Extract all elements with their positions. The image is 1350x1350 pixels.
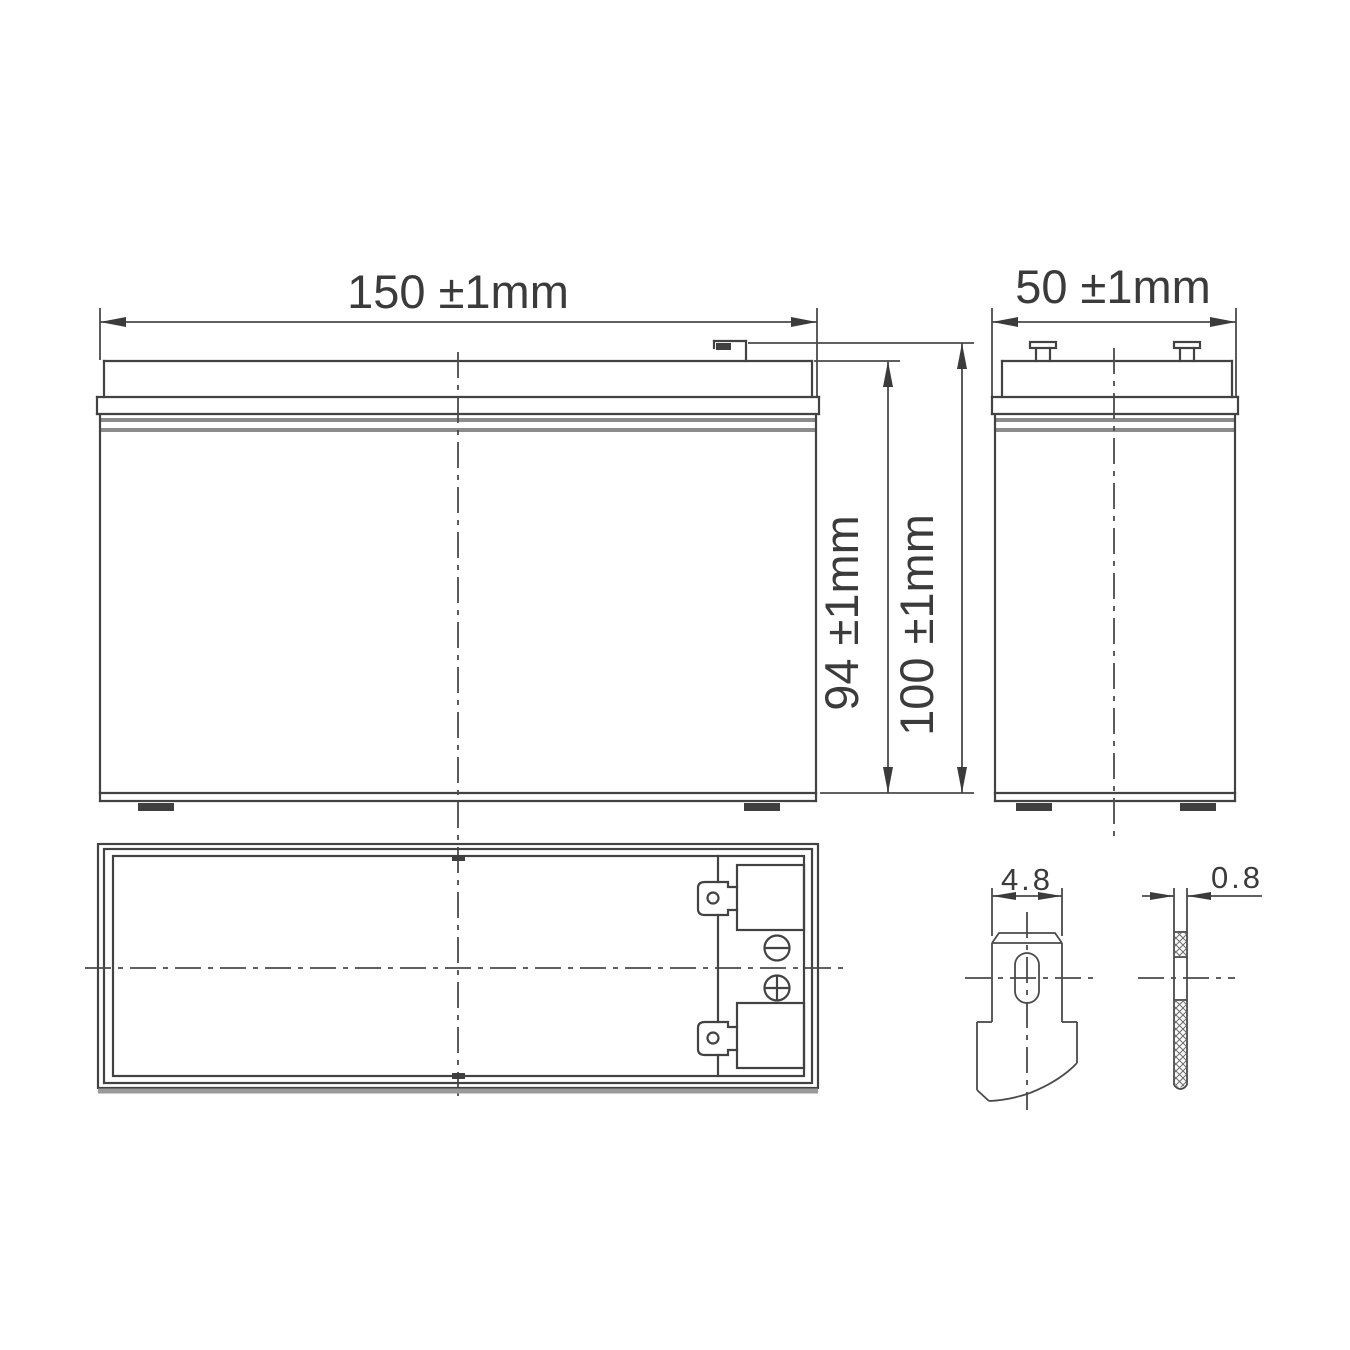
depth-dimension-label: 50 ±1mm [1015, 260, 1211, 313]
terminal-side-detail: 0.8 [1138, 860, 1263, 1089]
hatch-upper [1175, 932, 1186, 957]
side-view: 50 ±1mm [992, 260, 1238, 836]
front-terminal-tab [714, 341, 746, 361]
depth-dimension: 50 ±1mm [992, 260, 1236, 396]
side-foot-right [1180, 803, 1216, 811]
height-dimensions: 94 ±1mm 100 ±1mm [748, 343, 974, 793]
terminal-front-detail: 4.8 [965, 862, 1095, 1110]
terminal-width-label: 4.8 [1001, 862, 1053, 897]
terminal-thickness-label: 0.8 [1211, 860, 1263, 895]
drawing-canvas: 150 ±1mm [0, 0, 1350, 1350]
front-foot-left [138, 803, 174, 811]
top-terminal-base-2 [737, 1003, 804, 1068]
top-terminal-tab-1 [698, 882, 737, 915]
minus-terminal-marker [765, 936, 790, 961]
side-terminal-posts [1030, 342, 1200, 361]
total-height-dimension: 100 ±1mm [890, 343, 967, 793]
side-foot-left [1016, 803, 1052, 811]
case-height-dimension-label: 94 ±1mm [815, 515, 868, 711]
front-foot-right [744, 803, 780, 811]
hatch-lower [1175, 1000, 1186, 1088]
centerline-tick-bottom [452, 1073, 465, 1079]
top-terminal-tab-2 [698, 1022, 737, 1055]
top-terminal-base-1 [737, 865, 804, 930]
top-view [85, 844, 848, 1091]
centerline-tick-top [452, 855, 465, 861]
plus-terminal-marker [765, 976, 790, 1001]
case-height-dimension: 94 ±1mm [815, 361, 893, 793]
battery-dimension-drawing: 150 ±1mm [0, 0, 1350, 1350]
front-view: 150 ±1mm [97, 265, 819, 1096]
width-dimension-label: 150 ±1mm [347, 265, 569, 318]
total-height-dimension-label: 100 ±1mm [890, 514, 943, 736]
terminal-thickness-dimension: 0.8 [1142, 860, 1263, 900]
